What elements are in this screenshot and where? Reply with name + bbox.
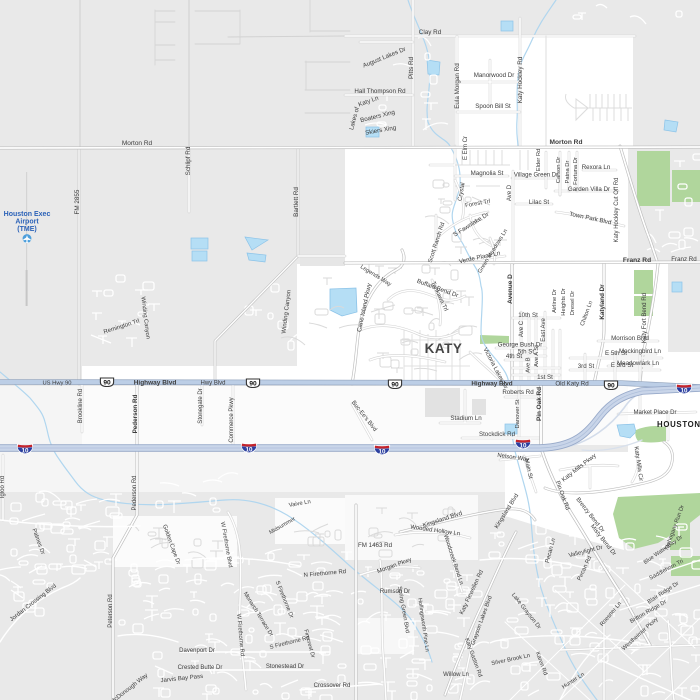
- svg-text:Davenport Dr: Davenport Dr: [179, 648, 215, 654]
- svg-text:Highway Blvd: Highway Blvd: [471, 381, 512, 388]
- svg-text:Stonestead Dr: Stonestead Dr: [266, 664, 304, 670]
- svg-text:Ave D: Ave D: [507, 184, 513, 201]
- svg-text:10: 10: [246, 447, 253, 454]
- svg-text:Danover St: Danover St: [515, 399, 521, 428]
- svg-text:Franz Rd: Franz Rd: [671, 256, 697, 263]
- svg-text:Franz Rd: Franz Rd: [623, 257, 651, 264]
- svg-text:10: 10: [379, 449, 386, 456]
- svg-text:Willow Ln: Willow Ln: [443, 672, 469, 678]
- svg-text:1st St: 1st St: [537, 374, 553, 381]
- svg-text:Peterson Rd: Peterson Rd: [108, 594, 114, 627]
- svg-text:Manorwood Dr: Manorwood Dr: [474, 72, 515, 79]
- svg-text:Magnolia St: Magnolia St: [471, 170, 504, 177]
- svg-text:90: 90: [391, 382, 399, 389]
- svg-text:Pederson Rd: Pederson Rd: [132, 475, 138, 510]
- svg-text:90: 90: [249, 381, 257, 388]
- svg-text:Roberts Rd: Roberts Rd: [502, 389, 534, 396]
- svg-text:Airline Dr: Airline Dr: [552, 289, 558, 313]
- svg-text:Pederson Rd: Pederson Rd: [132, 394, 139, 433]
- svg-text:Crested Butte Dr: Crested Butte Dr: [178, 665, 223, 671]
- svg-text:East Ave: East Ave: [541, 318, 547, 342]
- svg-text:Heights Dr: Heights Dr: [561, 288, 567, 315]
- svg-text:Houston Exec: Houston Exec: [4, 211, 51, 218]
- svg-text:Morrison Blvd: Morrison Blvd: [611, 335, 649, 342]
- svg-text:Ave A St: Ave A St: [534, 345, 540, 367]
- svg-text:E 5th St: E 5th St: [605, 350, 627, 357]
- svg-text:Carson Dr: Carson Dr: [556, 157, 562, 183]
- svg-text:Fortuna Dr: Fortuna Dr: [573, 157, 579, 185]
- svg-text:Stadium Ln: Stadium Ln: [450, 415, 482, 422]
- svg-text:4th St: 4th St: [506, 353, 522, 360]
- svg-text:Igloo Rd: Igloo Rd: [0, 476, 6, 498]
- svg-text:90: 90: [103, 380, 111, 387]
- svg-text:Pin Oak Rd: Pin Oak Rd: [536, 387, 543, 421]
- svg-text:(TME): (TME): [17, 226, 36, 233]
- svg-text:Commerce Pkwy: Commerce Pkwy: [229, 397, 235, 442]
- svg-text:Hall Thompson Rd: Hall Thompson Rd: [354, 88, 406, 95]
- svg-text:HOUSTON: HOUSTON: [657, 420, 700, 429]
- svg-text:Brookline Rd: Brookline Rd: [78, 389, 84, 423]
- svg-text:FM 1463 Rd: FM 1463 Rd: [358, 542, 393, 549]
- svg-text:Airport: Airport: [15, 219, 39, 226]
- svg-text:Katy Hockley Cut Off Rd: Katy Hockley Cut Off Rd: [614, 178, 620, 243]
- svg-text:FM 2855: FM 2855: [74, 189, 81, 214]
- svg-text:10: 10: [22, 448, 29, 455]
- svg-text:10th St: 10th St: [518, 312, 538, 319]
- svg-text:US Hwy 90: US Hwy 90: [43, 380, 72, 386]
- svg-text:90: 90: [607, 383, 615, 390]
- svg-text:Hwy Blvd: Hwy Blvd: [200, 381, 225, 387]
- svg-text:Stonegate Dr: Stonegate Dr: [198, 388, 204, 423]
- svg-text:Avenue D: Avenue D: [507, 274, 514, 304]
- svg-text:Ave C: Ave C: [519, 320, 525, 337]
- svg-text:3rd St: 3rd St: [578, 363, 595, 370]
- svg-text:Rexora Ln: Rexora Ln: [582, 164, 611, 171]
- svg-text:Dresel Dr: Dresel Dr: [570, 291, 576, 316]
- svg-text:Patna Dr: Patna Dr: [565, 160, 571, 183]
- svg-text:Stockdick Rd: Stockdick Rd: [479, 431, 516, 438]
- svg-text:Pitts Rd: Pitts Rd: [408, 56, 415, 79]
- svg-text:Katy Hockley Rd: Katy Hockley Rd: [517, 56, 524, 103]
- svg-text:Highway Blvd: Highway Blvd: [134, 380, 177, 387]
- svg-text:KATY: KATY: [425, 341, 463, 356]
- svg-text:Schlipf Rd: Schlipf Rd: [185, 146, 192, 175]
- svg-text:Bartlett Rd: Bartlett Rd: [293, 187, 300, 217]
- svg-text:10: 10: [520, 443, 527, 450]
- svg-text:Morton Rd: Morton Rd: [122, 140, 153, 147]
- svg-text:Garden Villa Dr: Garden Villa Dr: [568, 186, 610, 193]
- svg-text:Katyland Dr: Katyland Dr: [599, 284, 606, 320]
- svg-text:Ave B: Ave B: [526, 357, 532, 372]
- svg-text:10: 10: [681, 388, 688, 395]
- svg-text:Market Place Dr: Market Place Dr: [633, 410, 676, 416]
- svg-text:E Elm Cr: E Elm Cr: [463, 136, 469, 160]
- svg-text:Clay Rd: Clay Rd: [419, 29, 442, 36]
- svg-text:Village Green Dr: Village Green Dr: [514, 173, 558, 179]
- svg-text:Spoon Bill St: Spoon Bill St: [475, 103, 511, 110]
- svg-text:Morton Rd: Morton Rd: [550, 139, 583, 146]
- svg-text:Rumson Dr: Rumson Dr: [380, 589, 410, 595]
- svg-text:Old Katy Rd: Old Katy Rd: [555, 381, 589, 388]
- svg-text:Elder Rd: Elder Rd: [536, 149, 542, 172]
- svg-text:Crossover Rd: Crossover Rd: [314, 683, 351, 689]
- svg-text:Lilac St: Lilac St: [529, 199, 550, 206]
- svg-text:Eula Morgan Rd: Eula Morgan Rd: [454, 63, 461, 109]
- svg-text:E 3rd St: E 3rd St: [611, 362, 634, 369]
